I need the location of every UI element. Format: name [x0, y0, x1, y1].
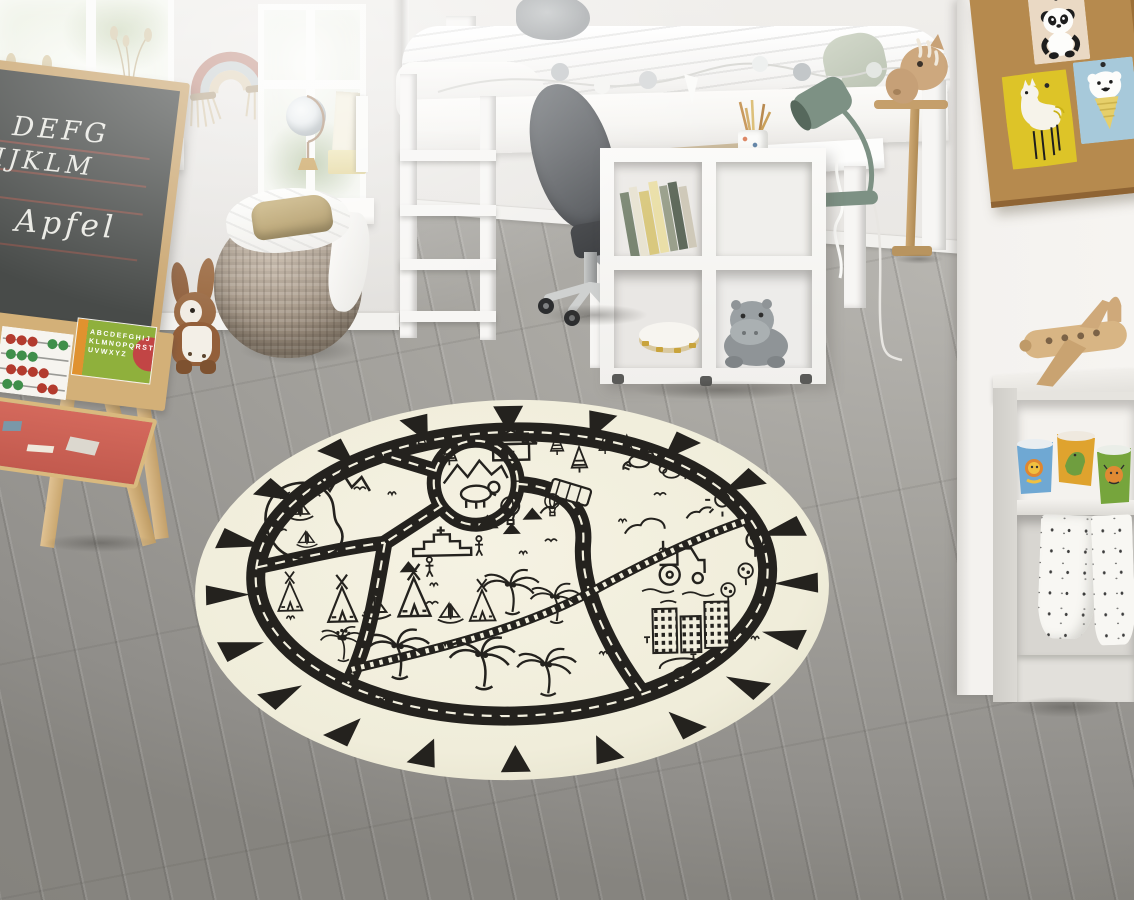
- panda-card: [1028, 0, 1091, 65]
- alphabet-chart: ABCDEFGHIJ KLMNOPQRST UVWXYZ: [71, 317, 157, 384]
- chair-shadow: [520, 300, 670, 330]
- cabinet-shadow: [990, 692, 1134, 722]
- plush-hippo: [712, 288, 798, 370]
- chalk-piece: [26, 444, 54, 453]
- ladder-rung-4: [400, 311, 496, 322]
- hobby-horse: [860, 34, 970, 274]
- horse-stick: [905, 104, 919, 254]
- globe-stand: [284, 92, 334, 178]
- ladder-rung-2: [400, 205, 496, 216]
- bookend: [356, 96, 368, 172]
- easel-shadow: [20, 530, 180, 556]
- croc-cup: [1057, 431, 1095, 486]
- abacus: [0, 326, 74, 400]
- easel-tray: [0, 395, 158, 489]
- muslin-cloth-2: [1091, 514, 1134, 645]
- shelf-shadow: [596, 376, 846, 404]
- horse-shadow: [884, 252, 954, 266]
- animal-cups: [1013, 430, 1134, 516]
- chalkboard-easel: DEFG IJKLM Apfel ABCDEFGHIJ KLMNOPQRST U…: [0, 60, 210, 560]
- horse-head: [872, 34, 956, 114]
- chalkboard: DEFG IJKLM Apfel: [0, 59, 190, 358]
- tiger-cup: [1097, 445, 1131, 504]
- cube-shelf: [600, 148, 826, 384]
- play-rug: [186, 387, 838, 792]
- muslin-cloth-1: [1037, 514, 1099, 640]
- cork-pinboard: [969, 0, 1134, 208]
- llama-card: [1002, 69, 1077, 169]
- window-middle-mullion-h: [258, 80, 366, 89]
- chalk-line-3: Apfel: [14, 203, 118, 246]
- cabinet: [993, 372, 1134, 702]
- cube-top-right: [716, 162, 812, 256]
- icecream-bear-card: [1073, 56, 1134, 144]
- board-eraser: [65, 436, 99, 455]
- shelf-books: [616, 170, 702, 256]
- blue-chalk: [2, 421, 22, 431]
- kids-room-scene: DEFG IJKLM Apfel ABCDEFGHIJ KLMNOPQRST U…: [0, 0, 1134, 900]
- chalk-rule-4: [0, 240, 137, 261]
- ladder-rung-1: [400, 150, 496, 161]
- lion-cup: [1017, 439, 1053, 494]
- ladder-rung-3: [400, 259, 496, 270]
- toy-airplane: [1012, 292, 1134, 388]
